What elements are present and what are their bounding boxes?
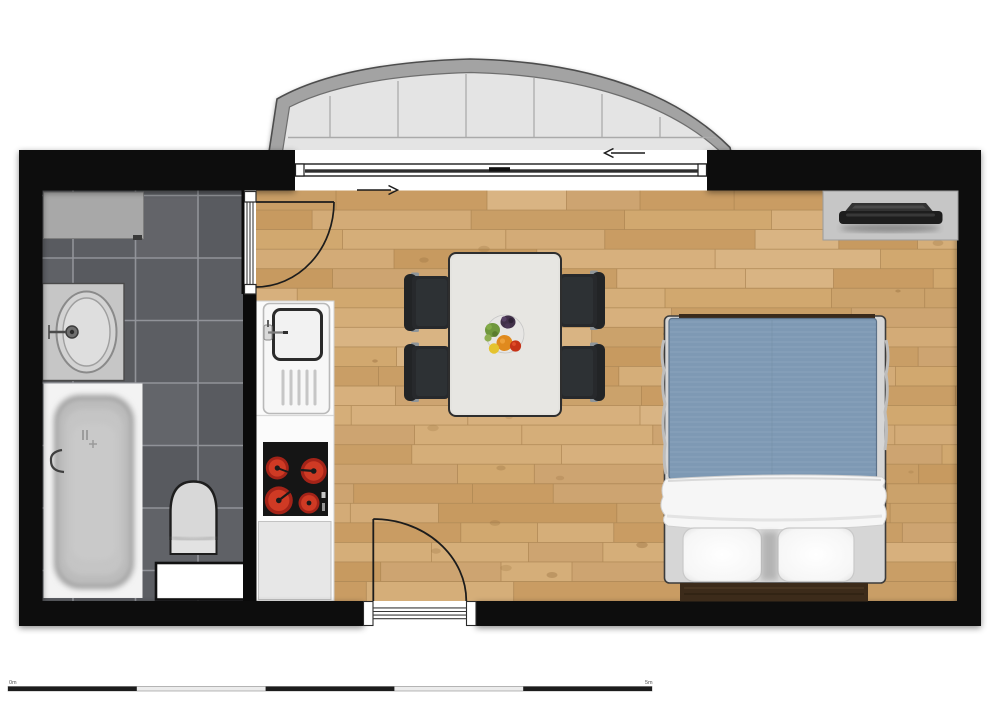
svg-text:5m: 5m xyxy=(645,680,653,686)
svg-text:0m: 0m xyxy=(9,680,17,686)
